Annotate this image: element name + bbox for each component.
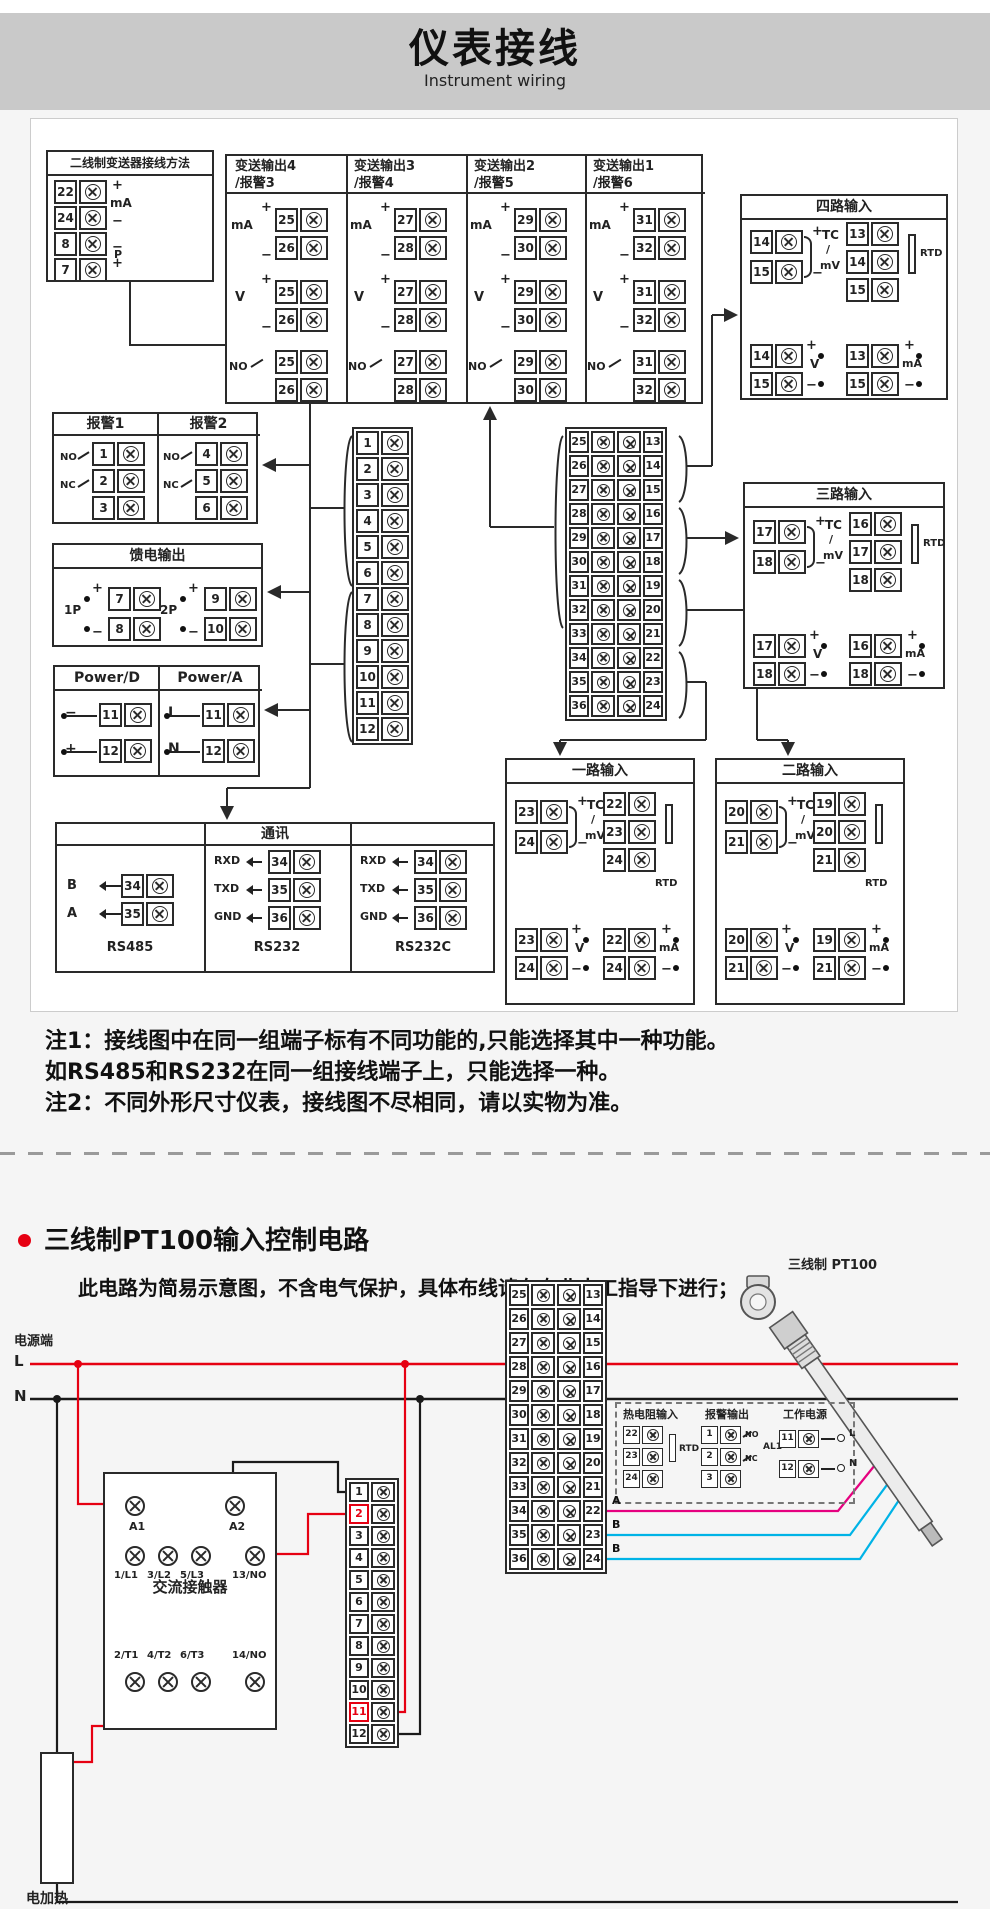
pt100-section-title: 三线制PT100输入控制电路: [44, 1220, 369, 1257]
input-box-title: 二路输入: [717, 760, 903, 784]
transmit-col-header: 变送输出4/报警3: [227, 156, 346, 194]
plus-sign: +: [619, 272, 630, 287]
terminal-11: 11: [779, 1430, 819, 1448]
terminal-23: 23: [603, 820, 656, 844]
rtd-label: RTD: [923, 538, 945, 549]
terminal-4: 4: [349, 1548, 395, 1568]
screw-icon: [117, 469, 145, 493]
screw-icon: [371, 1636, 395, 1656]
terminal-number: 33: [509, 1476, 529, 1498]
strip-row: 3624: [509, 1548, 603, 1570]
terminal-number: 36: [509, 1548, 529, 1570]
terminal-number: 26: [509, 1308, 529, 1330]
terminal-17: 17: [753, 634, 806, 658]
terminal-31: 31: [633, 350, 686, 374]
comm-title: 通讯: [57, 824, 493, 846]
comm-standard-name: RS485: [57, 940, 203, 955]
terminal-34: 34: [268, 850, 321, 874]
terminal-28: 28: [509, 1356, 555, 1378]
screw-icon: [419, 208, 447, 232]
screw-icon: [146, 902, 174, 926]
terminal-number: 28: [394, 236, 417, 260]
contact-screw-icon: [245, 1546, 265, 1566]
minus-sign: −: [619, 248, 630, 263]
terminal-12: 12: [779, 1460, 819, 1478]
terminal-number: 19: [583, 1428, 603, 1450]
terminal-number: 29: [509, 1380, 529, 1402]
terminal-number: 21: [725, 956, 748, 980]
terminal-26: 26: [509, 1308, 555, 1330]
mv-label: mV: [585, 829, 605, 842]
terminal-8: 8: [54, 232, 107, 256]
screw-icon: [557, 1380, 581, 1402]
strip-row: 5: [349, 1570, 395, 1590]
terminal-24: 24: [603, 956, 656, 980]
screw-icon: [778, 634, 806, 658]
l-ring-icon: [837, 1434, 845, 1442]
screw-icon: [557, 1404, 581, 1426]
terminal-number: 32: [569, 599, 589, 621]
terminal-number: 27: [394, 350, 417, 374]
terminal-number: 24: [54, 206, 77, 230]
power-sign: L: [168, 705, 177, 721]
terminal-number: 17: [753, 520, 776, 544]
strip-row: 4: [356, 509, 409, 533]
terminal-number: 30: [569, 551, 589, 573]
wire-label-b: B: [612, 1542, 620, 1555]
screw-icon: [220, 496, 248, 520]
terminal-number: 24: [583, 1548, 603, 1570]
terminal-number: 34: [569, 647, 589, 669]
minus-sign: −: [188, 625, 199, 640]
screw-icon: [591, 647, 615, 669]
terminal-number: 2: [356, 457, 379, 481]
terminal-number: 32: [509, 1452, 529, 1474]
terminal-number: 18: [849, 662, 872, 686]
terminal-strip-single: 123456789101112: [352, 427, 413, 745]
terminal-number: 22: [583, 1500, 603, 1522]
screw-icon: [540, 830, 568, 854]
terminal-28: 28: [394, 308, 447, 332]
screw-icon: [124, 739, 152, 763]
terminal-15: 15: [750, 372, 803, 396]
screw-icon: [539, 378, 567, 402]
terminal-number: 16: [849, 634, 872, 658]
top-white-strip: [0, 0, 990, 13]
resistor-icon: [908, 234, 916, 274]
terminal-9: 9: [204, 587, 257, 611]
terminal-number: 24: [603, 956, 626, 980]
strip-row: 3523: [509, 1524, 603, 1546]
terminal-number: 19: [643, 575, 663, 597]
plus-sign: +: [907, 628, 918, 643]
terminal-number: 9: [204, 587, 227, 611]
transmit-col-subtitle: /报警5: [474, 175, 585, 192]
screw-icon: [439, 906, 467, 930]
terminal-35: 35: [268, 878, 321, 902]
strip-row: 3624: [569, 695, 663, 717]
terminal-14: 14: [750, 344, 803, 368]
resistor-icon: [669, 1434, 676, 1462]
terminal-19: 19: [813, 928, 866, 952]
terminal-number: 13: [583, 1284, 603, 1306]
terminal-27: 27: [569, 479, 615, 501]
mv-label: mV: [823, 549, 843, 562]
v-label: V: [575, 941, 584, 955]
terminal-25: 25: [275, 350, 328, 374]
terminal-32: 32: [569, 599, 615, 621]
ma-label: mA: [905, 647, 925, 660]
terminal-12: 12: [356, 717, 409, 741]
strip-row: 8: [356, 613, 409, 637]
screw-icon: [750, 928, 778, 952]
plus-sign: +: [261, 272, 272, 287]
strip-row: 2: [349, 1504, 395, 1524]
strip-row: 6: [349, 1592, 395, 1612]
terminal-number: 30: [514, 378, 537, 402]
rtd-label: RTD: [655, 878, 677, 889]
terminal-27: 27: [394, 350, 447, 374]
left-arrow-icon: [394, 917, 408, 919]
terminal-28: 28: [394, 236, 447, 260]
screw-icon: [117, 496, 145, 520]
terminal-7: 7: [54, 258, 107, 282]
screw-icon: [371, 1680, 395, 1700]
screw-icon: [557, 1284, 581, 1306]
screw-icon: [591, 575, 615, 597]
screw-icon: [531, 1428, 555, 1450]
instrument-terminal-legend: 热电阻输入报警输出工作电源222324RTD123NONCAL11112LN: [615, 1402, 855, 1504]
terminal-2: 2: [92, 469, 145, 493]
screw-icon: [381, 509, 409, 533]
terminal-number: 32: [633, 308, 656, 332]
strip-row: 2816: [569, 503, 663, 525]
terminal-8: 8: [356, 613, 409, 637]
left-arrow-icon: [394, 861, 408, 863]
comm-signal-label: GND: [360, 910, 387, 923]
wire-dot: [919, 671, 925, 677]
page-subtitle: Instrument wiring: [0, 71, 990, 90]
screw-icon: [381, 717, 409, 741]
terminal-number: 35: [414, 878, 437, 902]
minus-sign: −: [661, 962, 672, 977]
screw-icon: [300, 350, 328, 374]
screw-icon: [79, 206, 107, 230]
terminal-29: 29: [514, 350, 567, 374]
wire-dot: [883, 965, 889, 971]
terminal-number: 36: [414, 906, 437, 930]
strip-row: 3321: [569, 623, 663, 645]
terminal-number: 22: [54, 180, 77, 204]
terminal-26: 26: [275, 378, 328, 402]
terminal-31: 31: [633, 208, 686, 232]
minus-sign: −: [904, 378, 915, 393]
screw-icon: [617, 671, 641, 693]
screw-icon: [371, 1482, 395, 1502]
terminal-strip-double: 2513261427152816291730183119322033213422…: [565, 427, 667, 721]
terminal-7: 7: [108, 587, 161, 611]
terminal-number: 7: [349, 1614, 369, 1634]
screw-icon: [874, 662, 902, 686]
notes: 注1：接线图中在同一组端子标有不同功能的,只能选择其中一种功能。 如RS485和…: [45, 1026, 729, 1119]
screw-icon: [220, 469, 248, 493]
terminal-18: 18: [753, 550, 806, 574]
terminal-34: 34: [569, 647, 615, 669]
ma-label: mA: [659, 941, 679, 954]
minus-sign: −: [92, 625, 103, 640]
terminal-number: 31: [569, 575, 589, 597]
terminal-25: 25: [569, 431, 615, 453]
terminal-number: 3: [701, 1470, 718, 1488]
screw-icon: [419, 378, 447, 402]
coil-label: A1: [129, 1520, 145, 1533]
strip-row: 8: [349, 1636, 395, 1656]
no-row-label: NO: [587, 360, 606, 373]
terminal-number: 14: [846, 250, 869, 274]
brace-icon: [804, 236, 812, 278]
screw-icon: [540, 800, 568, 824]
terminal-number: 22: [643, 647, 663, 669]
alarm-box: 报警1NONC123报警2NONC456: [52, 412, 258, 524]
screw-icon: [540, 956, 568, 980]
screw-icon: [117, 442, 145, 466]
wire-dot: [793, 965, 799, 971]
transmit-col-title: 变送输出4: [235, 158, 346, 175]
contact-label: 2/T1: [114, 1650, 138, 1661]
terminal-number: 21: [643, 623, 663, 645]
terminal-number: 35: [569, 671, 589, 693]
screw-icon: [557, 1524, 581, 1546]
terminal-22: 22: [54, 180, 107, 204]
screw-icon: [871, 278, 899, 302]
wire-dot: [916, 381, 922, 387]
terminal-number: 30: [509, 1404, 529, 1426]
slash-label: /: [801, 813, 805, 826]
terminal-27: 27: [394, 280, 447, 304]
terminal-34: 34: [414, 850, 467, 874]
terminal-strip-double-bottom: 2513261427152816291730183119322033213422…: [505, 1280, 607, 1574]
two-wire-title: 二线制变送器接线方法: [48, 152, 212, 176]
minus-sign: −: [500, 248, 511, 263]
minus-sign: −: [571, 962, 582, 977]
left-arrow-icon: [101, 885, 121, 887]
terminal-number: 24: [515, 830, 538, 854]
screw-icon: [750, 800, 778, 824]
screw-icon: [531, 1284, 555, 1306]
terminal-29: 29: [514, 208, 567, 232]
terminal-number: 22: [623, 1426, 640, 1444]
terminal-25: 25: [275, 208, 328, 232]
mv-label: mV: [795, 829, 815, 842]
two-wire-transmitter-box: 二线制变送器接线方法 22+24−8−7+mAP: [46, 150, 214, 282]
slash-label: /: [829, 533, 833, 546]
screw-icon: [658, 350, 686, 374]
screw-icon: [798, 1430, 819, 1448]
screw-icon: [591, 503, 615, 525]
wire-dot: [84, 626, 90, 632]
screw-icon: [658, 378, 686, 402]
terminal-number: 6: [356, 561, 379, 585]
terminal-number: 3: [356, 483, 379, 507]
relay-lever-icon: [180, 479, 192, 488]
terminal-11: 11: [202, 703, 255, 727]
terminal-2: 2: [349, 1504, 395, 1524]
terminal-29: 29: [509, 1380, 555, 1402]
dashed-divider: [0, 1152, 990, 1155]
wire-dot: [84, 596, 90, 602]
bullet-icon: [18, 1234, 31, 1247]
screw-icon: [371, 1614, 395, 1634]
contact-screw-icon: [125, 1672, 145, 1692]
plus-sign: +: [661, 922, 672, 937]
terminal-3: 3: [701, 1470, 741, 1488]
screw-icon: [871, 222, 899, 246]
terminal-2: 2: [356, 457, 409, 481]
strip-row: 2715: [509, 1332, 603, 1354]
terminal-34: 34: [121, 874, 174, 898]
wire-label-b: B: [612, 1518, 620, 1531]
terminal-number: 5: [195, 469, 218, 493]
terminal-number: 21: [813, 956, 836, 980]
terminal-23: 23: [515, 800, 568, 824]
screw-icon: [642, 1448, 663, 1466]
strip-row: 3: [356, 483, 409, 507]
terminal-12: 12: [202, 739, 255, 763]
screw-icon: [557, 1332, 581, 1354]
terminal-22: 22: [603, 928, 656, 952]
terminal-1: 1: [92, 442, 145, 466]
comm-signal-label: RXD: [214, 854, 240, 867]
rtd-label: RTD: [865, 878, 887, 889]
terminal-27: 27: [394, 208, 447, 232]
terminal-number: 5: [356, 535, 379, 559]
terminal-7: 7: [356, 587, 409, 611]
terminal-number: 11: [779, 1430, 796, 1448]
terminal-number: 28: [509, 1356, 529, 1378]
terminal-number: 17: [643, 527, 663, 549]
strip-row: 11: [349, 1702, 395, 1722]
screw-icon: [381, 587, 409, 611]
terminal-10: 10: [356, 665, 409, 689]
screw-icon: [557, 1356, 581, 1378]
v-row-label: V: [474, 290, 484, 305]
terminal-24: 24: [603, 848, 656, 872]
terminal-number: 24: [603, 848, 626, 872]
screw-icon: [628, 848, 656, 872]
terminal-27: 27: [509, 1332, 555, 1354]
terminal-26: 26: [275, 308, 328, 332]
strip-row: 2513: [509, 1284, 603, 1306]
slash-label: /: [826, 243, 830, 256]
terminal-number: 10: [349, 1680, 369, 1700]
terminal-32: 32: [633, 308, 686, 332]
feed-group-label: 1P: [64, 603, 81, 617]
left-arrow-icon: [394, 889, 408, 891]
terminal-number: 18: [849, 568, 872, 592]
comm-standard-name: RS232C: [350, 940, 496, 955]
screw-icon: [591, 671, 615, 693]
heater-label: 电加热: [26, 1888, 68, 1908]
screw-icon: [617, 575, 641, 597]
no-row-label: NO: [229, 360, 248, 373]
terminal-number: 32: [633, 236, 656, 260]
l-junction-dot: [401, 1360, 409, 1368]
screw-icon: [617, 599, 641, 621]
power-sign: −: [65, 705, 77, 721]
power-wire: [67, 715, 97, 717]
power-wire: [821, 1438, 835, 1440]
terminal-number: 21: [725, 830, 748, 854]
comm-signal-label: A: [67, 906, 77, 921]
plus-sign: +: [500, 272, 511, 287]
terminal-number: 22: [603, 792, 626, 816]
terminal-32: 32: [633, 378, 686, 402]
minus-sign: −: [907, 668, 918, 683]
terminal-21: 21: [813, 956, 866, 980]
terminal-number: 27: [509, 1332, 529, 1354]
input-box-title: 四路输入: [742, 196, 946, 220]
terminal-18: 18: [753, 662, 806, 686]
terminal-number: 8: [349, 1636, 369, 1656]
terminal-20: 20: [813, 820, 866, 844]
screw-icon: [371, 1658, 395, 1678]
ma-label: mA: [902, 357, 922, 370]
terminal-number: 26: [569, 455, 589, 477]
terminal-29: 29: [514, 280, 567, 304]
terminal-number: 12: [202, 739, 225, 763]
feed-title: 馈电输出: [54, 545, 261, 569]
strip-row: 2917: [569, 527, 663, 549]
terminal-21: 21: [813, 848, 866, 872]
n-label: N: [14, 1387, 27, 1405]
terminal-number: 7: [108, 587, 131, 611]
screw-icon: [419, 350, 447, 374]
terminal-number: 12: [356, 717, 379, 741]
terminal-number: 27: [394, 280, 417, 304]
n-junction-dot: [416, 1395, 424, 1403]
legend-col-title: 工作电源: [783, 1406, 827, 1422]
terminal-18: 18: [849, 568, 902, 592]
terminal-3: 3: [356, 483, 409, 507]
terminal-number: 35: [121, 902, 144, 926]
terminal-8: 8: [349, 1636, 395, 1656]
terminal-6: 6: [195, 496, 248, 520]
screw-icon: [557, 1548, 581, 1570]
strip-row: 2614: [569, 455, 663, 477]
terminal-number: 21: [583, 1476, 603, 1498]
terminal-14: 14: [750, 230, 803, 254]
screw-icon: [871, 372, 899, 396]
strip-row: 3018: [569, 551, 663, 573]
terminal-number: 28: [569, 503, 589, 525]
screw-icon: [293, 906, 321, 930]
coil-label: A2: [229, 1520, 245, 1533]
terminal-number: 11: [356, 691, 379, 715]
screw-icon: [300, 280, 328, 304]
tc-label: TC: [797, 798, 814, 812]
strip-row: 2715: [569, 479, 663, 501]
terminal-number: 17: [849, 540, 872, 564]
strip-row: 3523: [569, 671, 663, 693]
minus-sign: −: [261, 248, 272, 263]
no-label: NO: [60, 452, 77, 463]
terminal-number: 23: [583, 1524, 603, 1546]
screw-icon: [874, 568, 902, 592]
screw-icon: [540, 928, 568, 952]
power-box: Power/D−11+12Power/AL11N12: [53, 665, 260, 777]
terminal-35: 35: [509, 1524, 555, 1546]
terminal-number: 23: [515, 800, 538, 824]
